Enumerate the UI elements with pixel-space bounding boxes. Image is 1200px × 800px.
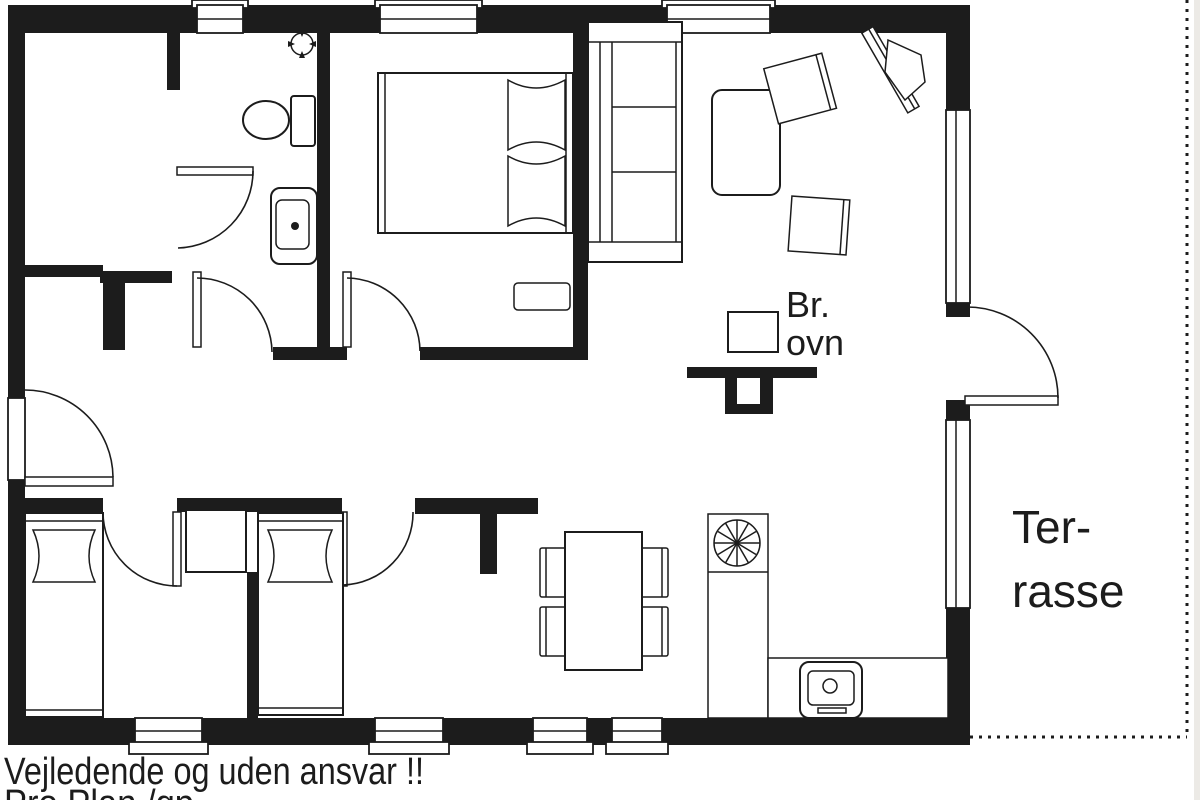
wood-stove: Br. ovn [687,284,844,414]
tv-bench-icon [862,27,925,113]
kitchen-sink-icon [800,662,862,718]
wood-stove-icon [728,312,778,352]
window-top-1 [192,0,248,33]
wardrobe-icon [186,510,246,572]
window-bottom-2 [369,718,449,754]
stove-label-line2: ovn [786,322,844,363]
dining-table-icon [565,532,642,670]
window-bottom-1 [129,718,208,754]
window-right-2 [946,420,970,608]
terrace-label-line1: Ter- [1012,501,1091,553]
door-bedroom-main [343,272,420,351]
paper-edge [1194,0,1200,800]
toilet-icon [243,96,315,146]
door-vestibule-bathroom [177,167,253,248]
dining-chair-icon-1 [540,548,568,597]
double-bed-icon [378,73,573,233]
sofa-icon [588,22,682,262]
footer: Vejledende og uden ansvar !! Pro Plan /g… [4,751,424,800]
single-bed-icon-2 [258,513,343,715]
living-room-furniture [588,22,925,262]
stove-label-line1: Br. [786,284,830,325]
hob-icon [714,520,760,566]
window-right-1 [946,110,970,303]
door-bedroom-middle [339,512,413,586]
small-bedrooms-furniture [25,510,343,717]
dining-furniture [540,532,668,670]
kitchen [708,514,948,718]
dining-chair-icon-3 [640,548,668,597]
coffee-table-icon [712,90,780,195]
bathroom-fixtures [243,30,317,264]
vent-icon [288,30,316,58]
credit-text: Pro Plan /gp [4,783,194,800]
bathroom-sink-icon [271,188,317,264]
door-entrance [8,390,113,486]
door-terrace [946,307,1058,405]
window-bottom-4 [606,718,668,754]
armchair-icon-2 [788,196,850,255]
floor-plan-drawing: Br. ovn [0,0,1200,800]
dining-chair-icon-4 [640,607,668,656]
window-top-2 [375,0,482,33]
floor-plan-page: Br. ovn [0,0,1200,800]
door-hall-upper [193,272,272,352]
door-bedroom-left [103,512,181,586]
terrace-label-line2: rasse [1012,565,1124,617]
terrace: Ter- rasse [970,0,1187,737]
nightstand [514,283,570,310]
single-bed-icon-1 [25,513,103,717]
window-bottom-3 [527,718,593,754]
bedroom-main-furniture [378,73,573,310]
dining-chair-icon-2 [540,607,568,656]
